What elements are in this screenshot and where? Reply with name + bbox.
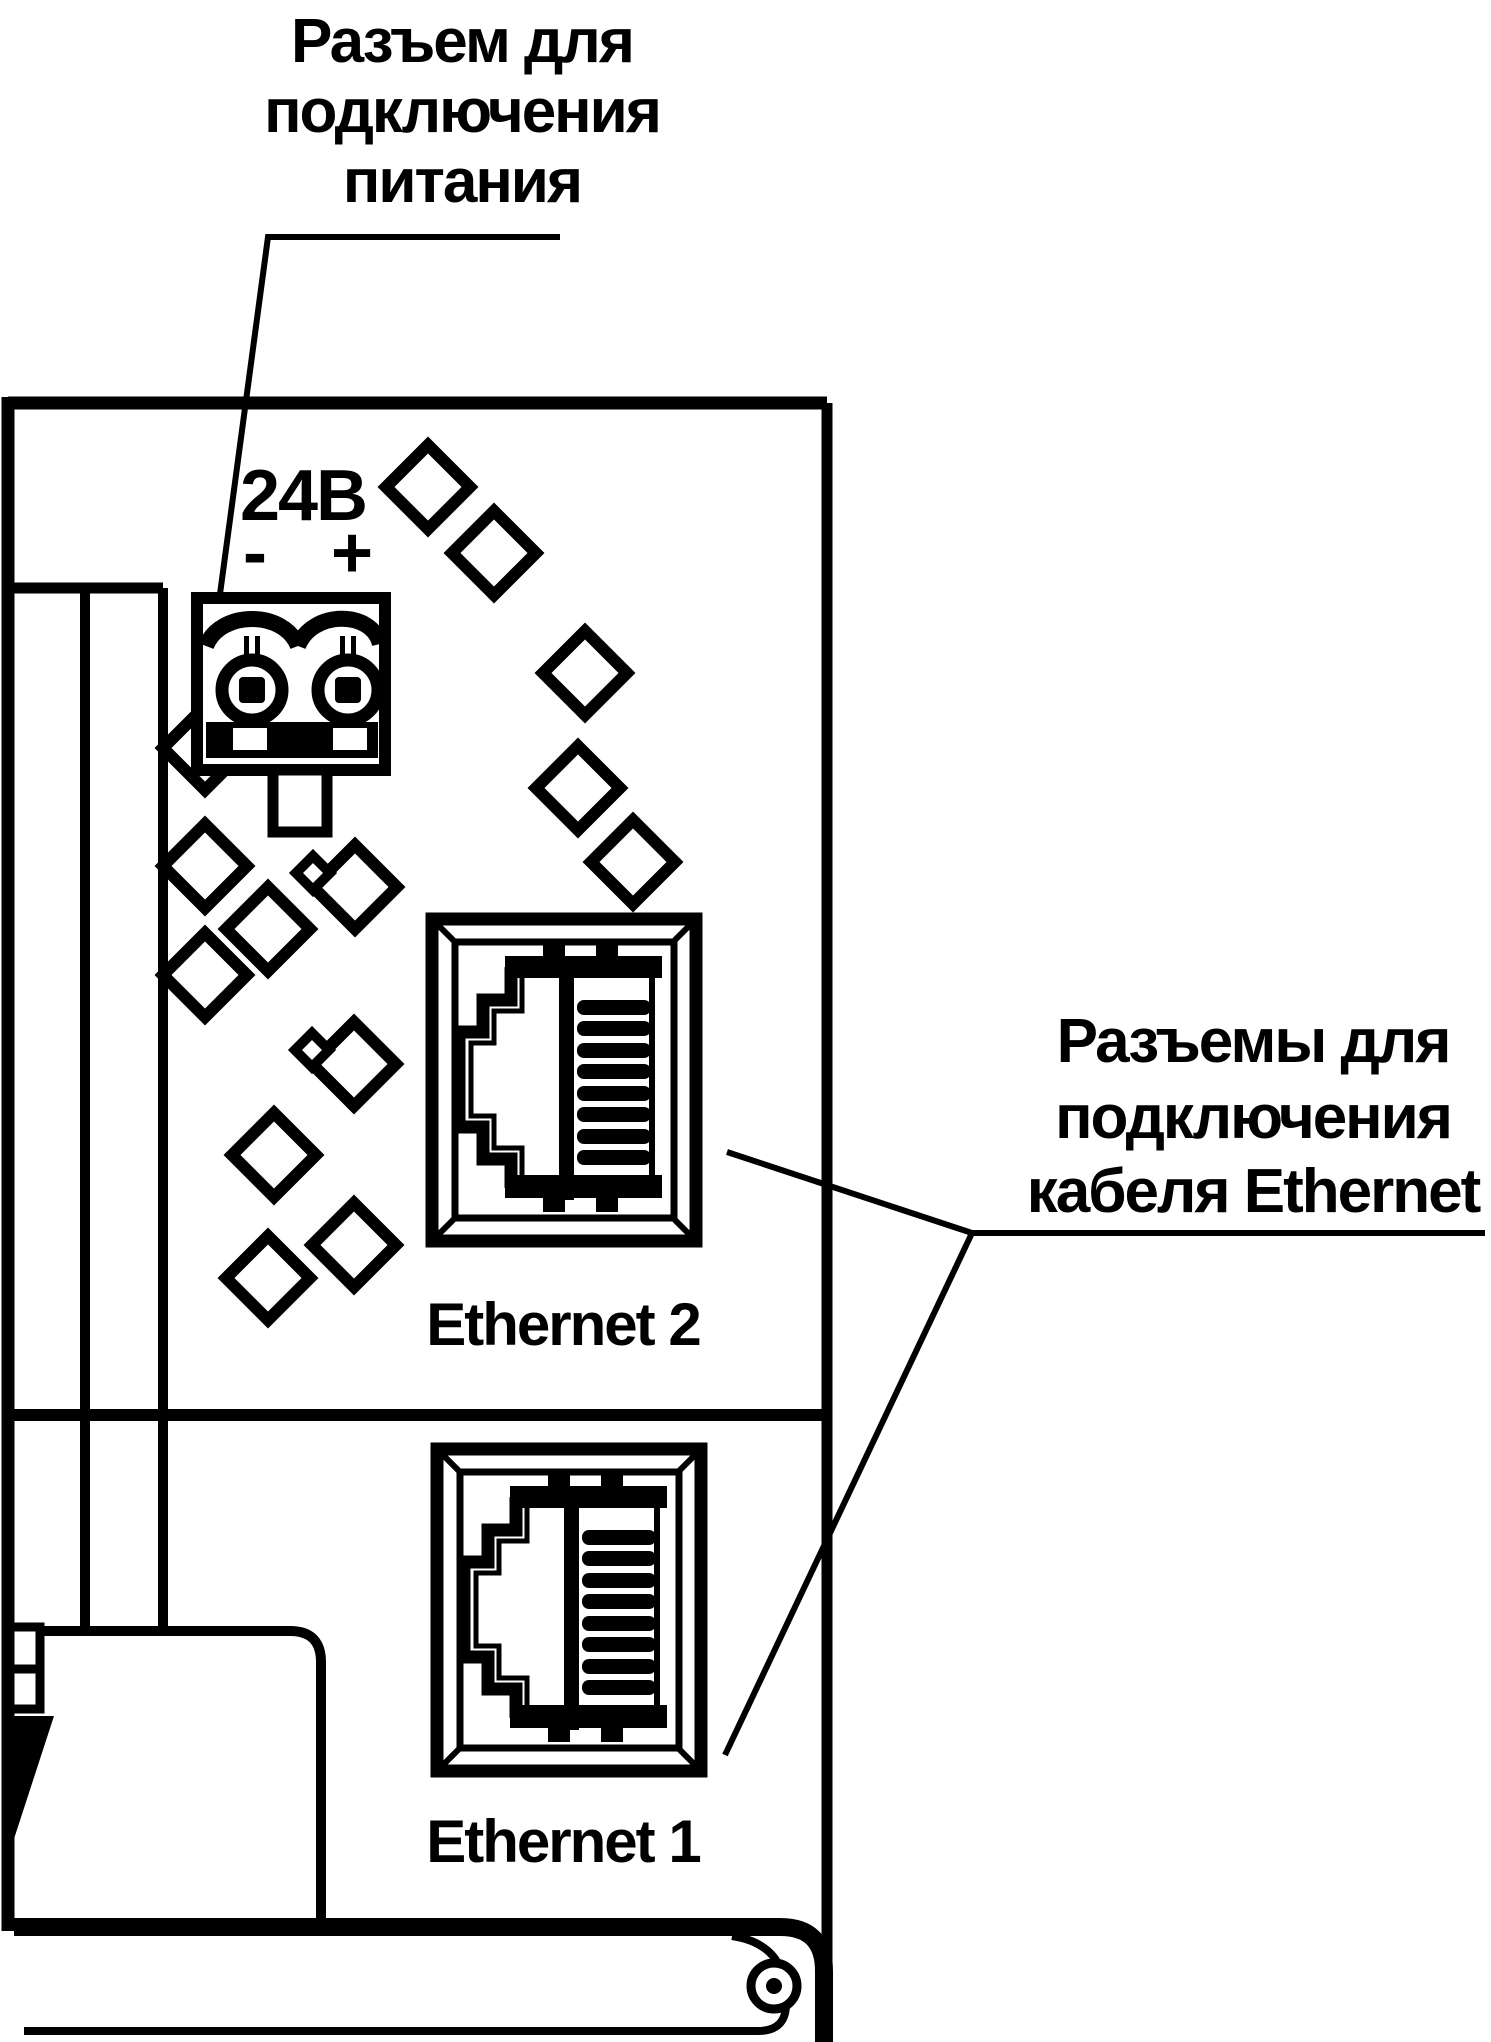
power-label-line3: питания bbox=[343, 147, 581, 216]
housing-foot bbox=[14, 1927, 824, 2042]
terminal-tab bbox=[273, 770, 327, 832]
diagram-canvas: Разъем для подключения питания Разъемы д… bbox=[0, 0, 1491, 2042]
power-terminal-icon bbox=[197, 598, 385, 832]
power-label-line1: Разъем для bbox=[291, 7, 633, 76]
minus-polarity-label: - bbox=[243, 513, 267, 593]
power-callout-label: Разъем для подключения питания bbox=[264, 7, 660, 216]
ethernet2-port rj45-port-icon bbox=[432, 919, 696, 1241]
ethernet-leader-lines bbox=[725, 1152, 1485, 1755]
plus-polarity-label: + bbox=[331, 513, 373, 593]
ethernet2-label: Ethernet 2 bbox=[426, 1291, 699, 1358]
ethernet1-label: Ethernet 1 bbox=[426, 1808, 700, 1875]
ethernet1-port rj45-port-icon bbox=[437, 1449, 701, 1771]
ethernet-label-line1: Разъемы для bbox=[1057, 1007, 1450, 1076]
device-panel-diagram: Разъем для подключения питания Разъемы д… bbox=[0, 0, 1491, 2042]
din-clip bbox=[10, 1627, 321, 1920]
ethernet-callout-label: Разъемы для подключения кабеля Ethernet bbox=[1027, 1007, 1481, 1226]
device-outline bbox=[8, 397, 827, 2042]
ethernet-label-line3: кабеля Ethernet bbox=[1027, 1157, 1481, 1226]
power-label-line2: подключения bbox=[264, 77, 660, 146]
din-clip-latch bbox=[12, 1716, 54, 1845]
left-channel-lines bbox=[8, 588, 163, 1631]
ethernet-label-line2: подключения bbox=[1055, 1083, 1451, 1152]
